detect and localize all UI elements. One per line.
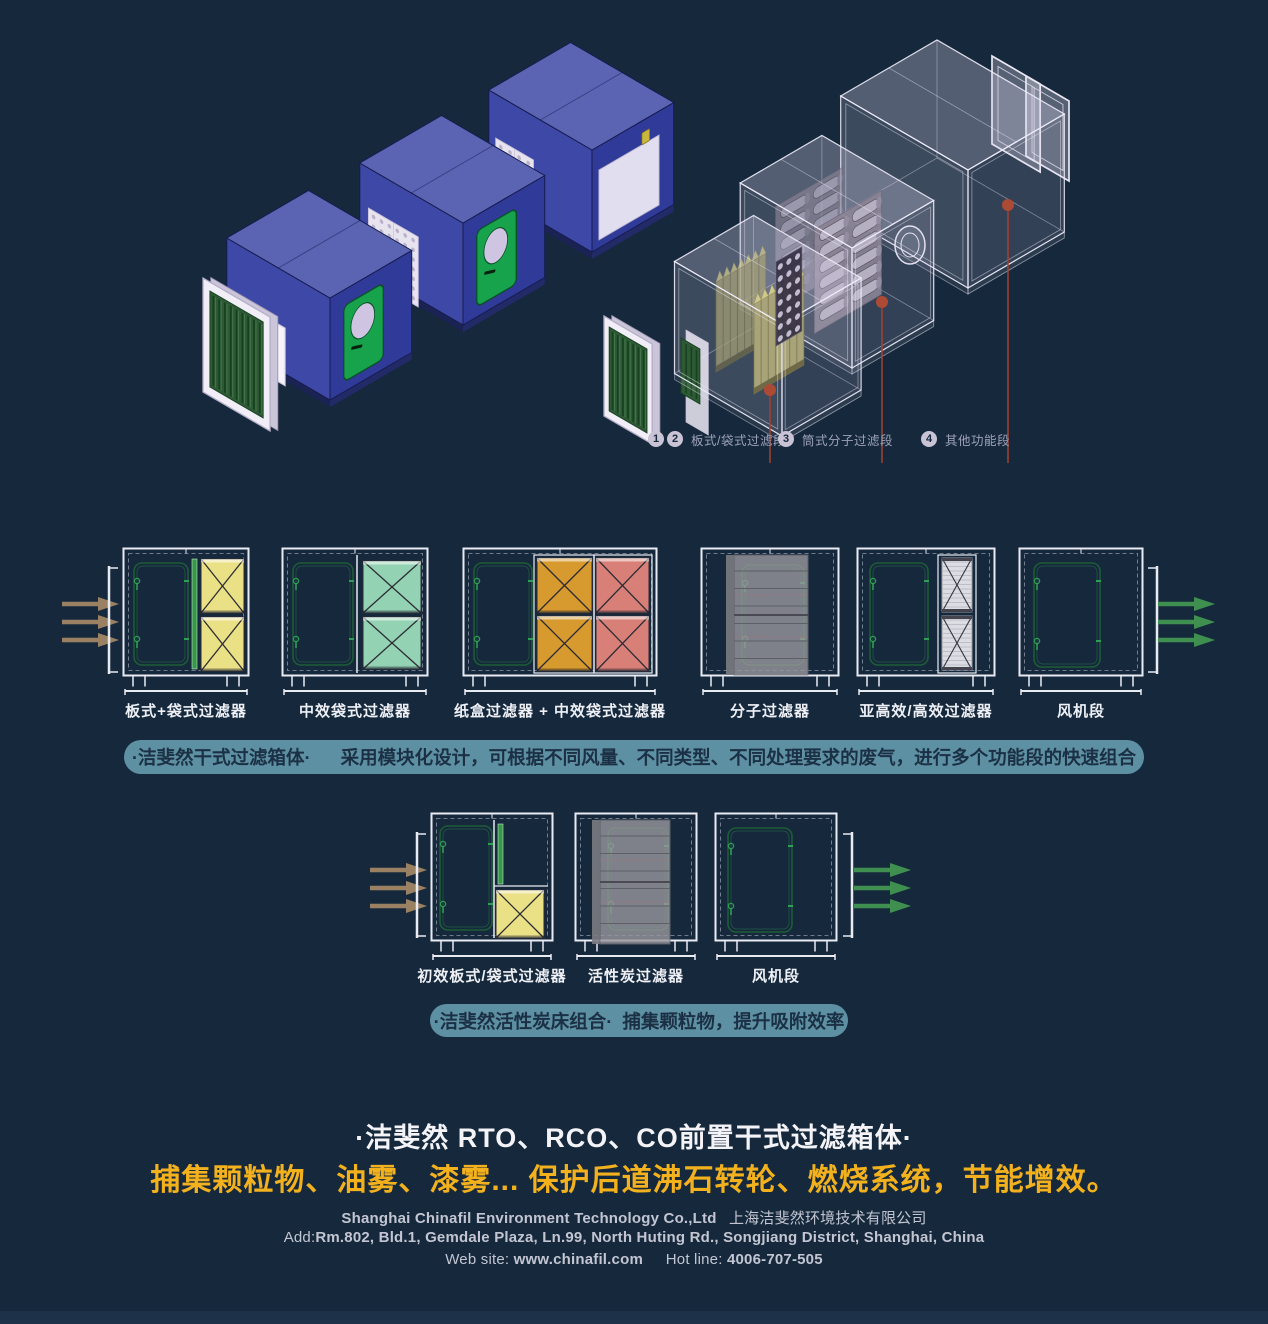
hero-callout: 12 板式/袋式过滤段 [648,430,786,448]
banner2-title: ·洁斐然活性炭床组合· [434,1008,613,1034]
inlet-flange [105,566,119,679]
callout-label: 其他功能段 [945,430,1010,449]
filter-module [1018,547,1144,697]
contact-line: Web site: www.chinafil.com Hot line: 400… [0,1251,1268,1268]
filter-module [714,812,838,962]
filter-module-schematic [700,547,840,697]
address-line: Add:Rm.802, Bld.1, Gemdale Plaza, Ln.99,… [0,1229,1268,1246]
outlet-airflow-arrows [1158,596,1216,653]
hero-svg [0,0,1268,470]
footer-tagline: 捕集颗粒物、油雾、漆雾... 保护后道沸石转轮、燃烧系统，节能增效。 [0,1155,1268,1199]
filter-module-schematic [462,547,658,697]
callout-number-badge: 3 [778,431,794,447]
callout-number-badge: 1 [648,431,664,447]
filter-module-schematic [281,547,429,697]
website-label: Web site: [445,1251,509,1268]
company-name-cn: 上海洁斐然环境技术有限公司 [729,1210,927,1227]
hotline-label: Hot line: [666,1251,723,1268]
poster-page: 12 板式/袋式过滤段3 筒式分子过滤段4 其他功能段 板式+袋式过滤器 [0,0,1268,1324]
filter-module-schematic [574,812,698,962]
banner1-title: ·洁斐然干式过滤箱体· [132,744,311,770]
filter-module [281,547,429,697]
company-line: Shanghai Chinafil Environment Technology… [0,1207,1268,1228]
inlet-flange [413,832,427,943]
filter-module-schematic [122,547,250,697]
filter-module [430,812,554,962]
banner-dry-filter: ·洁斐然干式过滤箱体· 采用模块化设计，可根据不同风量、不同类型、不同处理要求的… [124,740,1144,774]
callout-number-badge: 4 [921,431,937,447]
filter-module-schematic [714,812,838,962]
hotline-value: 4006-707-505 [727,1251,823,1268]
filter-module-label: 风机段 [646,965,906,986]
address-value: Rm.802, Bld.1, Gemdale Plaza, Ln.99, Nor… [315,1229,984,1246]
filter-module [700,547,840,697]
filter-module-schematic [856,547,996,697]
callout-label: 筒式分子过滤段 [802,430,893,449]
outlet-airflow-arrows [854,862,912,919]
footer-headline: ·洁斐然 RTO、RCO、CO前置干式过滤箱体· [0,1116,1268,1155]
filter-module [574,812,698,962]
address-label: Add: [284,1229,316,1246]
hero-illustration [0,0,1268,470]
filter-module [462,547,658,697]
filter-module-schematic [430,812,554,962]
hero-callout: 3 筒式分子过滤段 [778,430,893,448]
banner-carbon-bed: ·洁斐然活性炭床组合· 捕集颗粒物，提升吸附效率 [430,1004,848,1037]
filter-module-label: 风机段 [951,700,1211,721]
banner2-text: 捕集颗粒物，提升吸附效率 [622,1008,844,1034]
banner1-text: 采用模块化设计，可根据不同风量、不同类型、不同处理要求的废气，进行多个功能段的快… [341,744,1137,770]
filter-module [856,547,996,697]
filter-module [122,547,250,697]
filter-module-schematic [1018,547,1144,697]
company-name-en: Shanghai Chinafil Environment Technology… [341,1210,716,1227]
callout-label: 板式/袋式过滤段 [691,430,786,449]
website-value: www.chinafil.com [514,1251,643,1268]
bottom-accent-strip [0,1311,1268,1324]
hero-callout: 4 其他功能段 [921,430,1010,448]
callout-number-badge: 2 [667,431,683,447]
